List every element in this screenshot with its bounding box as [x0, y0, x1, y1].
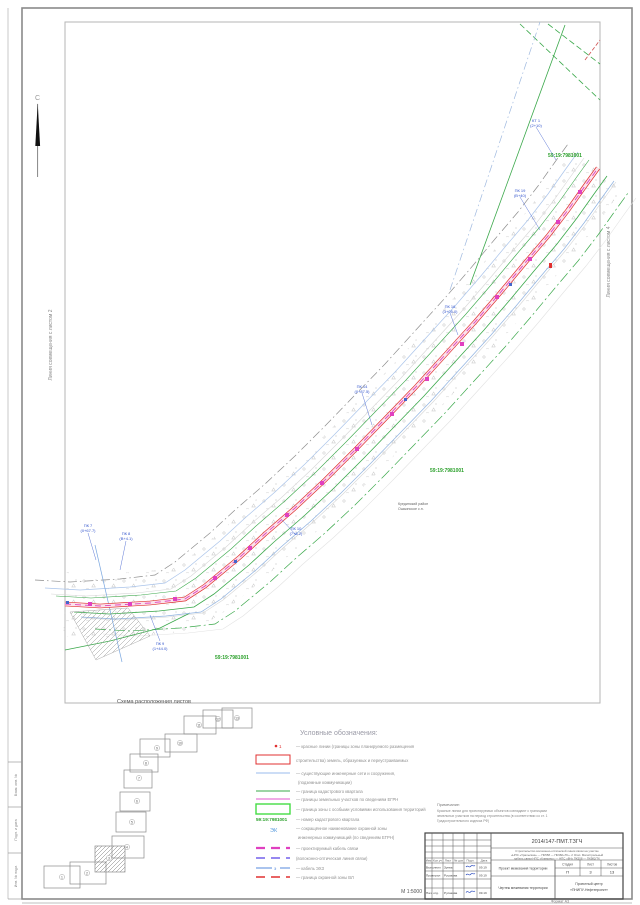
vegetation-band — [65, 168, 598, 606]
svg-text:12: 12 — [216, 717, 220, 721]
legend-sample-ek: ЭК — [270, 828, 278, 834]
svg-text:09.19: 09.19 — [479, 874, 487, 878]
svg-text:8: 8 — [145, 761, 147, 765]
org-line1: Проектный центр — [575, 882, 603, 886]
scheme-sheet: 6 — [134, 798, 139, 803]
svg-text:5: 5 — [131, 820, 133, 824]
area-label-line1: Куединский район — [398, 502, 428, 506]
svg-text:— кабель ЭХЗ: — кабель ЭХЗ — [296, 866, 325, 871]
svg-text:— номер кадастрового квартала: — номер кадастрового квартала — [296, 817, 360, 822]
note-block: Примечание: Красные линии для проектируе… — [437, 803, 548, 823]
scheme-sheet: 10 — [177, 740, 182, 745]
callout: ПК 7(0+67.7) — [80, 523, 96, 560]
svg-text:№ док: № док — [454, 859, 463, 863]
svg-text:1: 1 — [61, 875, 63, 879]
green-boundaries — [56, 24, 628, 650]
svg-text:строительства) земель, образуе: строительства) земель, образуемых и пере… — [296, 758, 409, 763]
matchline-left-label: Линия совмещения с листом 2 — [48, 309, 54, 380]
svg-text:3: 3 — [589, 870, 592, 875]
sheet-scheme-numbers: 1 2 3 4 5 6 7 8 9 10 11 12 13 — [59, 715, 239, 879]
svg-text:13: 13 — [610, 870, 615, 875]
format-label: Формат А3 — [551, 900, 569, 904]
scheme-sheet: 13 — [234, 715, 239, 720]
svg-text:(0+87.5): (0+87.5) — [354, 389, 370, 394]
sheet-title-drawing: Чертеж межевания территории — [498, 886, 547, 890]
scheme-sheet: 5 — [129, 819, 134, 824]
svg-text:10: 10 — [178, 741, 182, 745]
drawing-canvas: Взам. инв. № Подп. и дата Инв. № подл. С… — [0, 0, 640, 905]
matchline-right-label: Линия совмещения с листом 4 — [606, 226, 612, 297]
scheme-sheet: 12 — [215, 716, 220, 721]
svg-text:Выполнил: Выполнил — [426, 866, 441, 870]
strip-label-inv: Инв. № подл. — [14, 865, 18, 887]
svg-text:П: П — [566, 870, 569, 875]
cadastral-number-3: 59:19:7981001 — [215, 655, 249, 661]
scheme-sheet: 8 — [143, 760, 148, 765]
scheme-sheet: 11 — [196, 722, 201, 727]
svg-text:(1+44.0): (1+44.0) — [152, 646, 168, 651]
legend-sample-number: 59:19:7981001 — [256, 817, 288, 822]
svg-text:земельных участков на период с: земельных участков на период строительст… — [437, 814, 548, 818]
svg-text:— существующие инженерные сети: — существующие инженерные сети и сооруже… — [296, 771, 395, 776]
svg-text:9: 9 — [156, 746, 158, 750]
callout: ПК 8(В+4.1) — [119, 531, 133, 570]
svg-text:Русакова: Русакова — [444, 874, 458, 878]
svg-text:13: 13 — [235, 716, 239, 720]
red-marker — [549, 263, 552, 268]
strip-label-podp: Подп. и дата — [14, 819, 18, 840]
svg-text:Русакова: Русакова — [444, 891, 458, 895]
svg-text:(подземные коммуникации): (подземные коммуникации) — [298, 780, 352, 785]
callout: КТ 1(2+10) — [530, 118, 556, 160]
legend-sample-e: э — [274, 866, 277, 871]
svg-text:— сокращённое наименование охр: — сокращённое наименование охранной зоны — [296, 826, 387, 831]
svg-text:09.19: 09.19 — [479, 866, 487, 870]
drawing-sheet: Взам. инв. № Подп. и дата Инв. № подл. С… — [0, 0, 640, 905]
svg-text:(0+67.7): (0+67.7) — [80, 528, 96, 533]
scheme-sheet: 7 — [136, 775, 141, 780]
svg-text:Листов: Листов — [607, 863, 618, 867]
svg-text:3: 3 — [108, 856, 110, 860]
legend-title: Условные обозначения: — [300, 729, 378, 737]
svg-text:(7+6.2): (7+6.2) — [290, 531, 303, 536]
svg-text:4: 4 — [126, 845, 128, 849]
svg-text:Красные линии для проектируемы: Красные линии для проектируемых объектов… — [437, 809, 547, 813]
svg-text:— границы земельных участков п: — границы земельных участков по сведения… — [296, 797, 398, 802]
cadastral-number-2: 59:19:7981001 — [430, 468, 464, 474]
svg-text:— граница зоны с особыми услов: — граница зоны с особыми условиями испол… — [296, 807, 426, 812]
north-arrow-icon — [35, 103, 40, 177]
blue-utility-lines — [45, 22, 614, 662]
doc-number: 2014/147-ПМТ.ТЗГЧ — [532, 839, 583, 845]
svg-text:Градостроительного кодекса РФ): Градостроительного кодекса РФ) — [437, 819, 489, 823]
scheme-sheet: 9 — [154, 745, 159, 750]
svg-text:7: 7 — [138, 776, 140, 780]
scale-label: М 1:5000 — [401, 889, 422, 895]
svg-text:Изм: Изм — [426, 859, 432, 863]
scheme-sheet: 2 — [84, 870, 89, 875]
svg-text:инженерных коммуникаций (по св: инженерных коммуникаций (по сведениям ЕГ… — [298, 835, 395, 840]
svg-text:Подп.: Подп. — [467, 859, 475, 863]
svg-text:(3+05.0): (3+05.0) — [442, 309, 458, 314]
svg-text:— красные линии (границы зоны: — красные линии (границы зоны планируемо… — [296, 744, 414, 749]
svg-text:Лист: Лист — [587, 863, 594, 867]
svg-text:— граница кадастрового квартал: — граница кадастрового квартала — [296, 789, 363, 794]
svg-text:Дата: Дата — [481, 859, 488, 863]
scheme-sheet: 3 — [106, 855, 111, 860]
north-label: С — [35, 95, 40, 102]
strip-label-vzam: Взам. инв. № — [14, 774, 18, 796]
svg-text:Кол.уч: Кол.уч — [433, 859, 442, 863]
svg-text:Нач. отд.: Нач. отд. — [426, 891, 439, 895]
svg-text:2: 2 — [86, 871, 88, 875]
legend-sample-point: 1 — [279, 744, 282, 749]
svg-text:6: 6 — [136, 799, 138, 803]
svg-text:— проектируемый кабель связи: — проектируемый кабель связи — [296, 846, 359, 851]
scheme-sheet: 1 — [59, 874, 64, 879]
svg-text:Проверил: Проверил — [426, 874, 440, 878]
svg-text:(волоконно-оптическая линия св: (волоконно-оптическая линия связи) — [296, 856, 368, 861]
title-block: 2014/147-ПМТ.ТЗГЧ Строительство волоконн… — [425, 833, 623, 899]
map-area: 59:19:7981001 59:19:7981001 59:19:798100… — [35, 22, 636, 662]
svg-text:Лист: Лист — [445, 859, 452, 863]
svg-text:11: 11 — [197, 723, 201, 727]
route-corridor — [65, 40, 600, 606]
svg-text:(В+4.1): (В+4.1) — [119, 536, 133, 541]
project-line3: кабель связи НПС «Климино» — НПС «8Н» ПК… — [514, 856, 600, 860]
svg-text:(2+10): (2+10) — [530, 123, 542, 128]
area-label-line2: Ошьинское с.п. — [398, 507, 424, 511]
sheet-scheme — [44, 708, 252, 888]
svg-text:09.19: 09.19 — [479, 891, 487, 895]
scheme-title: Схема расположения листов — [117, 699, 191, 705]
legend: 1 — красные линии (границы зоны планируе… — [256, 744, 426, 880]
svg-text:Зуева: Зуева — [444, 866, 453, 870]
svg-text:— граница охранной зоны ВЛ: — граница охранной зоны ВЛ — [296, 875, 354, 880]
svg-text:(В+40): (В+40) — [514, 193, 527, 198]
cadastral-number-1: 59:19:7981001 — [548, 153, 582, 159]
org-line2: «ПНИПУ-Нефтепроект» — [570, 888, 608, 892]
svg-text:Стадия: Стадия — [562, 863, 573, 867]
sheet-title-main: Проект межевания территории — [499, 867, 548, 871]
svg-text:Примечание:: Примечание: — [437, 803, 460, 807]
